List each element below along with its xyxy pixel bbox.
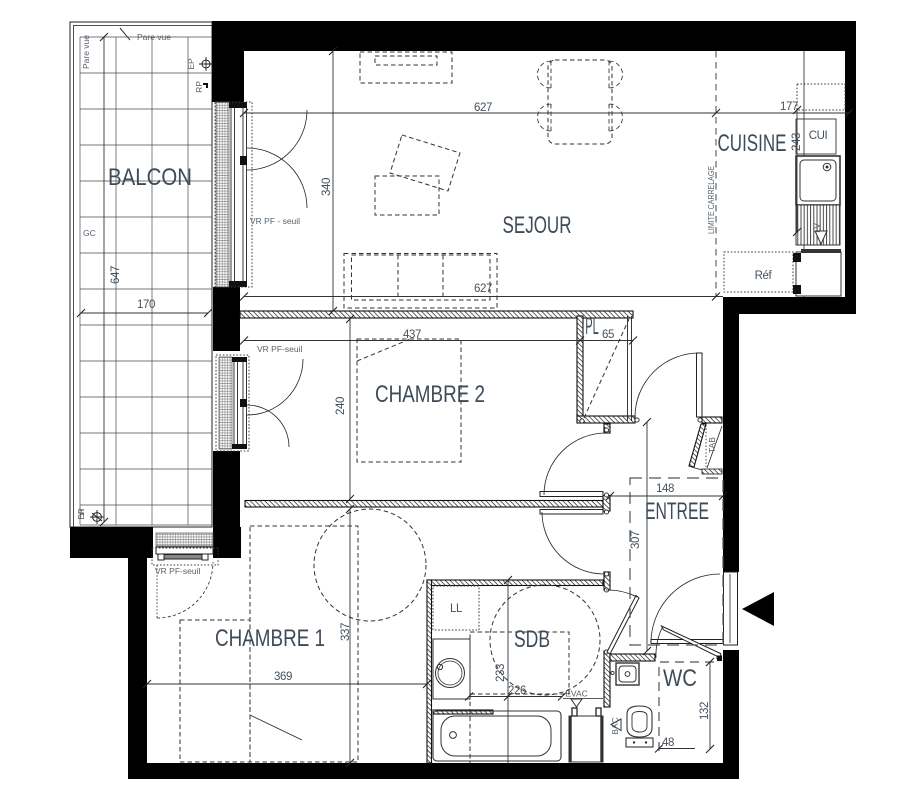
svg-text:PL: PL (585, 313, 599, 340)
svg-text:233: 233 (495, 664, 507, 682)
svg-text:LIMITE CARRELAGE: LIMITE CARRELAGE (706, 166, 716, 234)
svg-text:132: 132 (699, 702, 711, 720)
svg-text:65: 65 (602, 329, 614, 341)
svg-text:340: 340 (321, 178, 333, 196)
svg-text:EP: EP (76, 508, 86, 520)
svg-text:177: 177 (780, 101, 798, 113)
svg-text:BAC: BAC (610, 717, 620, 734)
svg-text:627: 627 (474, 283, 492, 295)
svg-text:BALCON: BALCON (108, 164, 192, 191)
svg-text:Pare vue: Pare vue (81, 35, 91, 69)
svg-text:GC: GC (83, 228, 96, 238)
svg-text:48: 48 (662, 737, 674, 749)
svg-text:TAB: TAB (707, 437, 717, 453)
svg-text:307: 307 (630, 531, 642, 549)
svg-text:LL: LL (450, 603, 463, 615)
svg-text:EP: EP (186, 58, 196, 70)
svg-text:CUI: CUI (809, 130, 828, 142)
svg-text:337: 337 (340, 623, 352, 641)
svg-text:170: 170 (137, 299, 155, 311)
svg-text:VR PF-seuil: VR PF-seuil (257, 344, 302, 354)
svg-text:Réf: Réf (755, 270, 773, 282)
svg-text:369: 369 (274, 671, 292, 683)
svg-text:226: 226 (508, 685, 526, 697)
svg-text:240: 240 (335, 397, 347, 415)
svg-text:EVAC: EVAC (565, 689, 588, 699)
svg-text:ENTREE: ENTREE (645, 498, 709, 525)
svg-text:CUISINE: CUISINE (718, 130, 787, 157)
svg-text:243: 243 (791, 133, 803, 151)
svg-text:627: 627 (474, 102, 492, 114)
svg-text:VR PF-seuil: VR PF-seuil (155, 566, 200, 576)
svg-text:SDB: SDB (514, 626, 550, 653)
svg-text:SEJOUR: SEJOUR (503, 212, 572, 239)
svg-text:Pare vue: Pare vue (137, 32, 171, 42)
svg-text:VR PF - seuil: VR PF - seuil (250, 216, 300, 226)
svg-text:WC: WC (663, 665, 697, 692)
svg-text:CHAMBRE 1: CHAMBRE 1 (215, 625, 325, 652)
svg-text:RP: RP (194, 81, 204, 93)
svg-text:CHAMBRE 2: CHAMBRE 2 (375, 381, 485, 408)
svg-text:LV: LV (812, 223, 822, 233)
svg-text:647: 647 (110, 266, 122, 284)
svg-text:148: 148 (656, 483, 674, 495)
svg-text:437: 437 (403, 329, 421, 341)
